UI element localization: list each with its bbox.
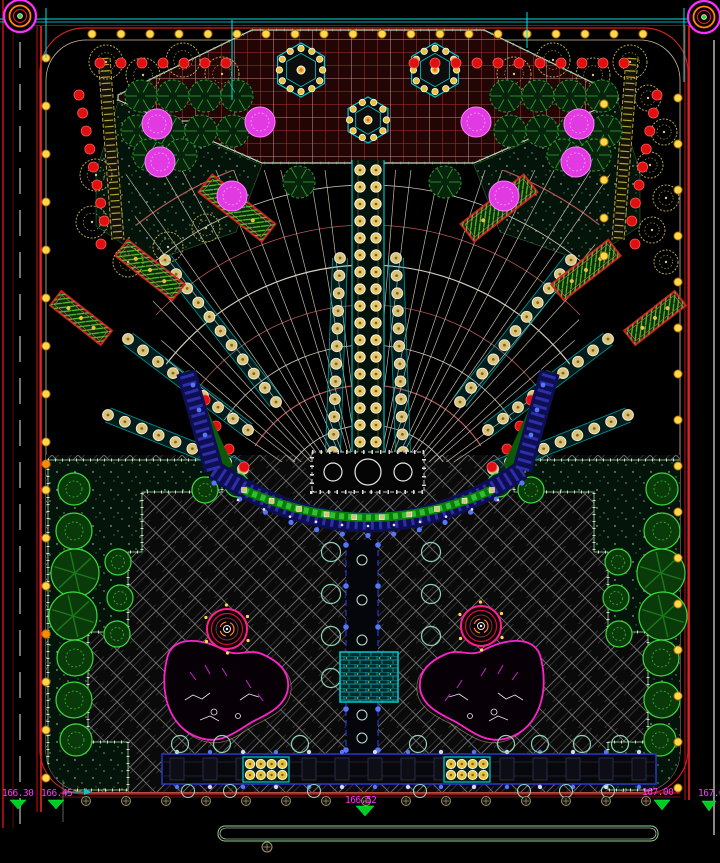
tree-green (157, 80, 189, 112)
tree-magenta (245, 107, 275, 137)
tree-bright-green (56, 682, 92, 718)
tree-magenta (461, 107, 491, 137)
tree-green (554, 80, 586, 112)
survey-circle (82, 797, 91, 806)
survey-circle (122, 797, 131, 806)
tree-bright-green (639, 592, 687, 640)
survey-circle (162, 797, 171, 806)
tree-bright-green (105, 549, 131, 575)
tree-bright-green (49, 592, 97, 640)
lattice-grid (444, 757, 490, 782)
tree-green (217, 115, 249, 147)
tree-magenta (217, 181, 247, 211)
survey-circle (282, 797, 291, 806)
lattice-grid (243, 757, 289, 782)
elevation-label: 166.52 (345, 795, 376, 806)
tree-bright-green (606, 621, 632, 647)
cad-canvas[interactable]: 166.30 166.45 166.52 167.00 167.0 (0, 0, 720, 863)
tree-bright-green (60, 724, 92, 756)
survey-circle (602, 797, 611, 806)
axis-walkway (352, 160, 384, 455)
stage-platform (312, 452, 424, 492)
tree-bright-green (644, 724, 676, 756)
tree-magenta (142, 109, 172, 139)
survey-circle (522, 797, 531, 806)
plan-layers (0, 0, 720, 863)
tree-bright-green (644, 682, 680, 718)
survey-circle (322, 797, 331, 806)
elevation-label: 167.0 (698, 788, 720, 799)
pool (340, 652, 398, 702)
bench-marker (262, 842, 272, 852)
corner-manhole (4, 0, 36, 32)
tree-bright-green (643, 640, 679, 676)
survey-circle (482, 797, 491, 806)
tree-green (526, 115, 558, 147)
tree-magenta (489, 181, 519, 211)
tree-bright-green (58, 473, 90, 505)
tree-magenta (561, 147, 591, 177)
tree-green (494, 115, 526, 147)
tree-magenta (564, 109, 594, 139)
elevation-label: 166.30 (2, 788, 34, 799)
survey-circle (562, 797, 571, 806)
elevation-label: 166.45 (41, 788, 72, 799)
tree-bright-green (56, 513, 92, 549)
survey-circle (242, 797, 251, 806)
cad-viewport[interactable]: 166.30 166.45 166.52 167.00 167.0 (0, 0, 720, 863)
tree-bright-green (603, 585, 629, 611)
tree-green (221, 80, 253, 112)
tree-green (125, 80, 157, 112)
tree-green (522, 80, 554, 112)
tree-green (283, 166, 315, 198)
tree-green (490, 80, 522, 112)
tree-magenta (145, 147, 175, 177)
corner-manhole (688, 1, 720, 33)
tree-bright-green (646, 473, 678, 505)
tree-bright-green (605, 549, 631, 575)
survey-circle (202, 797, 211, 806)
tree-green (189, 80, 221, 112)
tree-bright-green (104, 621, 130, 647)
elevation-label: 167.00 (642, 787, 674, 798)
survey-circle (402, 797, 411, 806)
survey-circle (442, 797, 451, 806)
tree-bright-green (57, 640, 93, 676)
tree-bright-green (644, 513, 680, 549)
tree-bright-green (107, 585, 133, 611)
tree-green (429, 166, 461, 198)
tree-bright-green (51, 549, 99, 597)
